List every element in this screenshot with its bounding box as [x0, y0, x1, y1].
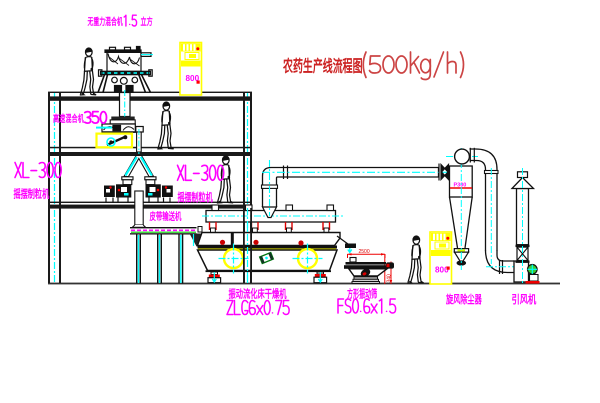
- svg-text:方形振动筛: 方形振动筛: [347, 286, 377, 300]
- svg-text:摇摆制粒机: 摇摆制粒机: [178, 190, 214, 203]
- svg-text:旋风除尘器: 旋风除尘器: [445, 292, 482, 305]
- svg-text:高速混合机: 高速混合机: [53, 112, 84, 124]
- svg-text:皮带输送机: 皮带输送机: [149, 210, 182, 222]
- svg-text:振动流化床干燥机: 振动流化床干燥机: [229, 287, 287, 300]
- svg-text:立方: 立方: [141, 15, 153, 27]
- svg-text:摇摆制粒机: 摇摆制粒机: [14, 187, 50, 200]
- svg-text:无重力混合机: 无重力混合机: [88, 15, 124, 27]
- svg-text:P300: P300: [454, 183, 467, 189]
- svg-text:340: 340: [387, 274, 393, 283]
- svg-text:引风机: 引风机: [512, 291, 537, 306]
- svg-text:农药生产线流程图: 农药生产线流程图: [282, 56, 362, 75]
- svg-text:2500: 2500: [359, 249, 370, 255]
